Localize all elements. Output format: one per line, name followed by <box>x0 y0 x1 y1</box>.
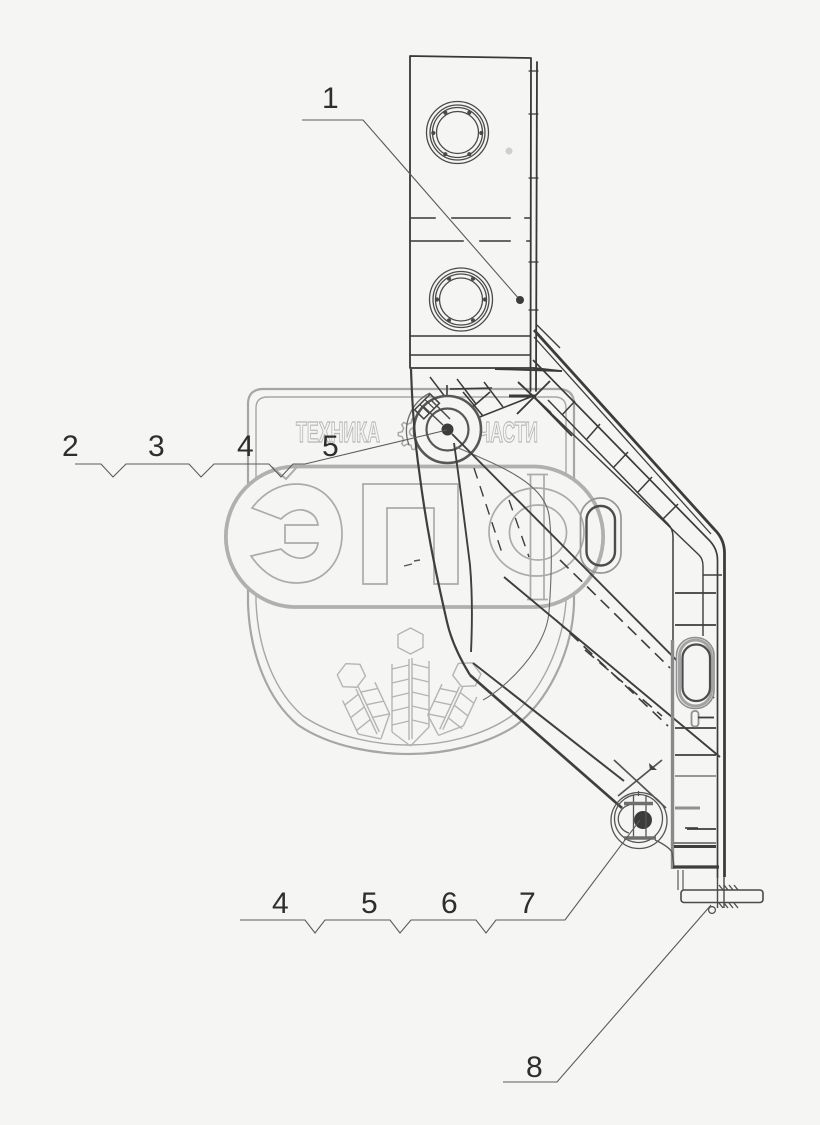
svg-text:7: 7 <box>519 887 536 920</box>
svg-text:5: 5 <box>322 430 339 463</box>
svg-text:3: 3 <box>148 430 165 463</box>
svg-text:5: 5 <box>361 887 378 920</box>
svg-text:4: 4 <box>272 887 289 920</box>
svg-text:8: 8 <box>526 1051 543 1084</box>
svg-text:4: 4 <box>237 430 254 463</box>
svg-text:6: 6 <box>441 887 458 920</box>
svg-text:1: 1 <box>322 82 339 115</box>
svg-text:2: 2 <box>62 430 79 463</box>
